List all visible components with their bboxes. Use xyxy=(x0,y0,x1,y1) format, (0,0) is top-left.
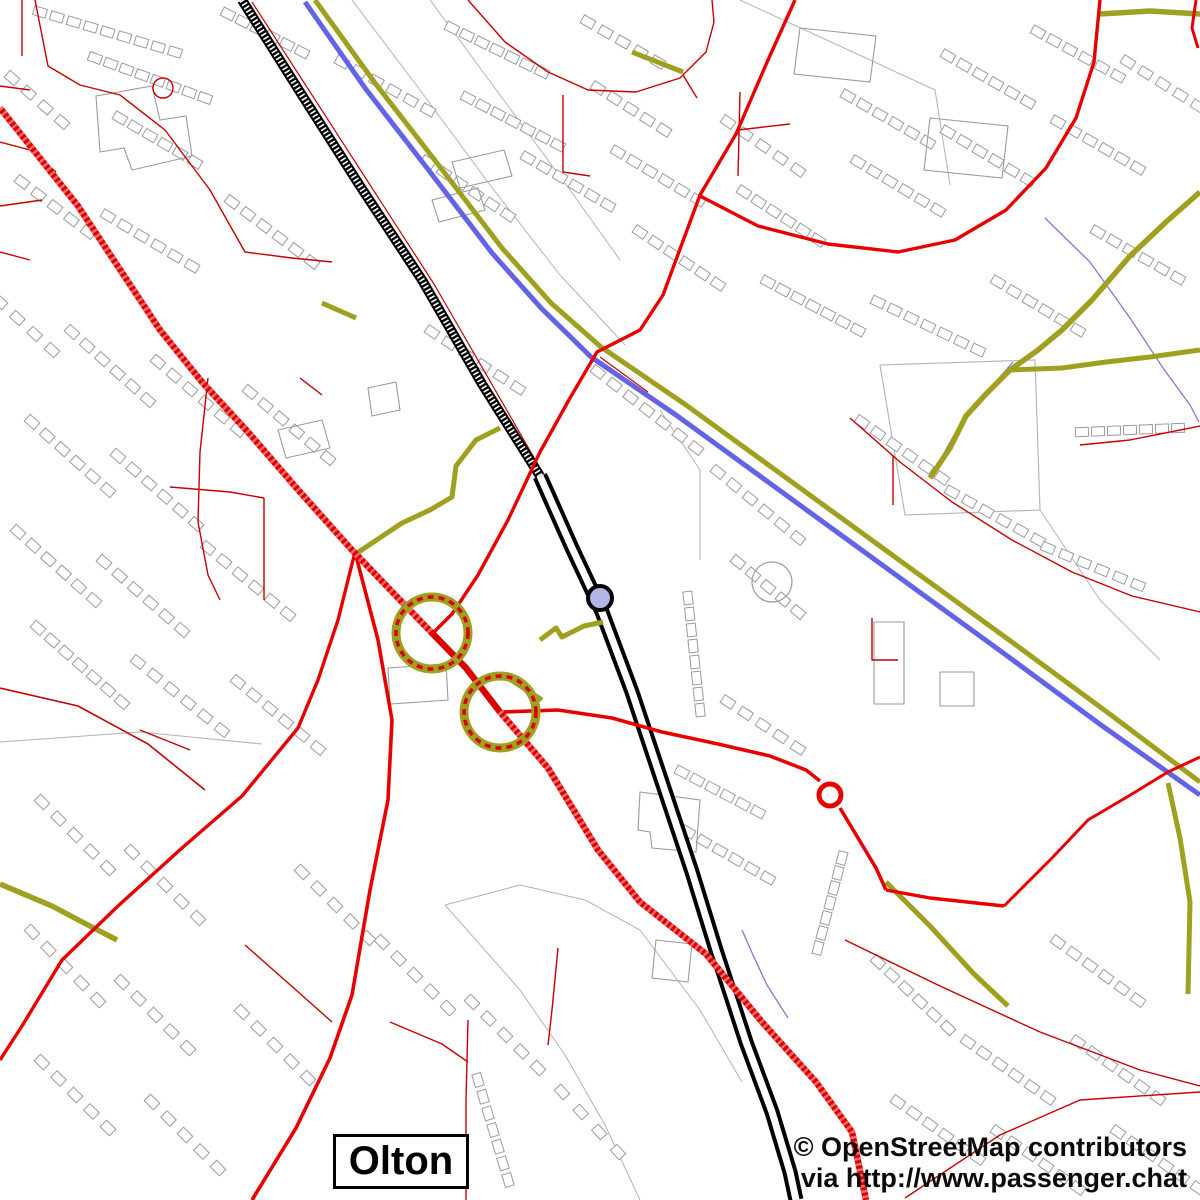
streams-layer xyxy=(742,218,1199,1018)
map-viewport[interactable]: Olton © OpenStreetMap contributors via h… xyxy=(0,0,1200,1200)
place-label-olton: Olton xyxy=(333,1134,469,1189)
attribution-line-1: © OpenStreetMap contributors xyxy=(794,1132,1187,1163)
attribution-line-2: via http://www.passenger.chat xyxy=(794,1163,1187,1194)
map-canvas[interactable] xyxy=(0,0,1200,1200)
parcel-lines-layer xyxy=(0,0,1160,1200)
place-label-text: Olton xyxy=(349,1139,453,1184)
roundabouts-layer xyxy=(396,597,841,806)
map-attribution: © OpenStreetMap contributors via http://… xyxy=(794,1132,1187,1194)
location-marker[interactable] xyxy=(588,586,612,610)
canal-layer xyxy=(305,0,1200,795)
trunk-road-layer xyxy=(0,108,866,1200)
railway-layer xyxy=(242,0,796,1200)
